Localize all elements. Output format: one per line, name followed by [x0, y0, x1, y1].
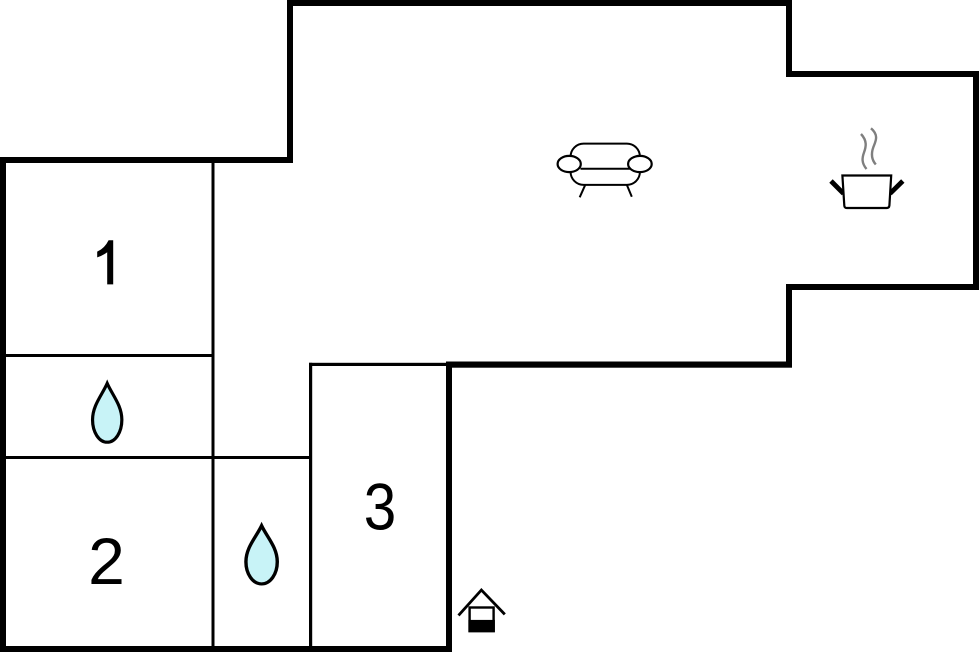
svg-text:3: 3 [364, 471, 396, 544]
svg-text:2: 2 [88, 524, 125, 598]
